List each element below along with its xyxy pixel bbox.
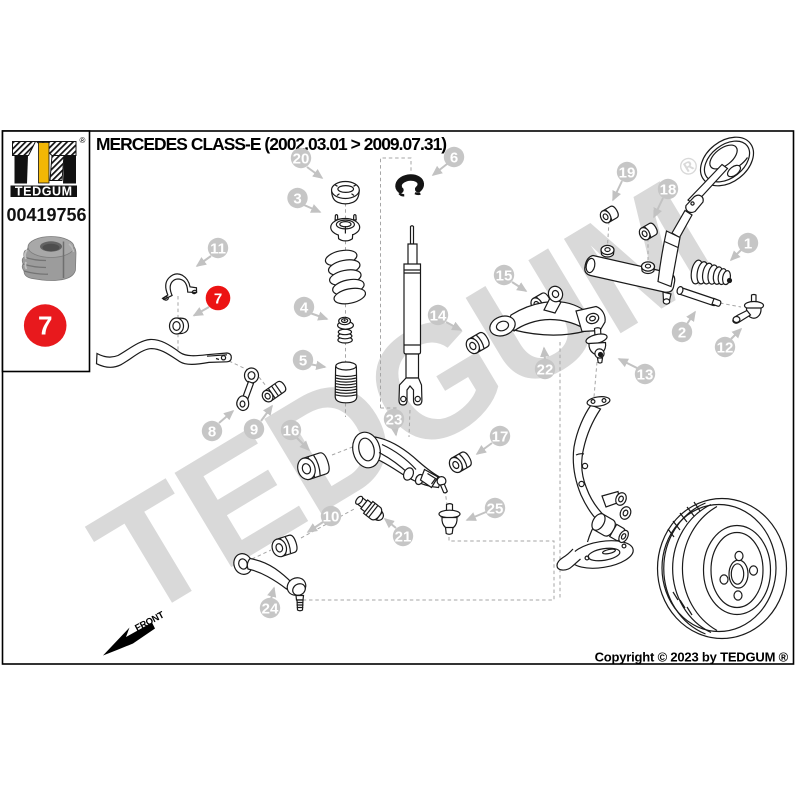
svg-text:1: 1 [744,235,752,252]
svg-text:Copyright © 2023 by TEDGUM ®: Copyright © 2023 by TEDGUM ® [595,650,789,665]
svg-text:®: ® [80,136,86,145]
svg-text:24: 24 [262,600,279,617]
svg-text:16: 16 [283,422,300,439]
svg-text:18: 18 [660,181,677,198]
svg-text:20: 20 [293,150,310,167]
svg-text:23: 23 [386,411,403,428]
svg-text:17: 17 [492,428,509,445]
svg-text:22: 22 [537,361,554,378]
svg-text:19: 19 [619,164,636,181]
svg-text:TEDGUM: TEDGUM [15,184,73,198]
svg-text:MERCEDES CLASS-E (2002.03.01: MERCEDES CLASS-E (2002.03.01 > 2009.07.3… [96,134,446,154]
svg-text:14: 14 [430,307,447,324]
svg-text:6: 6 [450,149,458,166]
svg-text:25: 25 [487,500,504,517]
svg-text:21: 21 [395,528,412,545]
svg-text:7: 7 [214,290,222,307]
svg-text:10: 10 [323,508,340,525]
svg-text:5: 5 [299,352,307,369]
svg-text:3: 3 [293,190,301,207]
svg-text:13: 13 [637,366,654,383]
svg-text:7: 7 [38,311,52,341]
svg-text:15: 15 [496,267,513,284]
svg-text:00419756: 00419756 [6,205,86,225]
svg-text:8: 8 [208,423,216,440]
svg-text:9: 9 [250,421,258,438]
svg-text:12: 12 [717,339,734,356]
svg-text:11: 11 [210,240,226,257]
svg-text:4: 4 [300,299,309,316]
svg-text:2: 2 [678,324,686,341]
